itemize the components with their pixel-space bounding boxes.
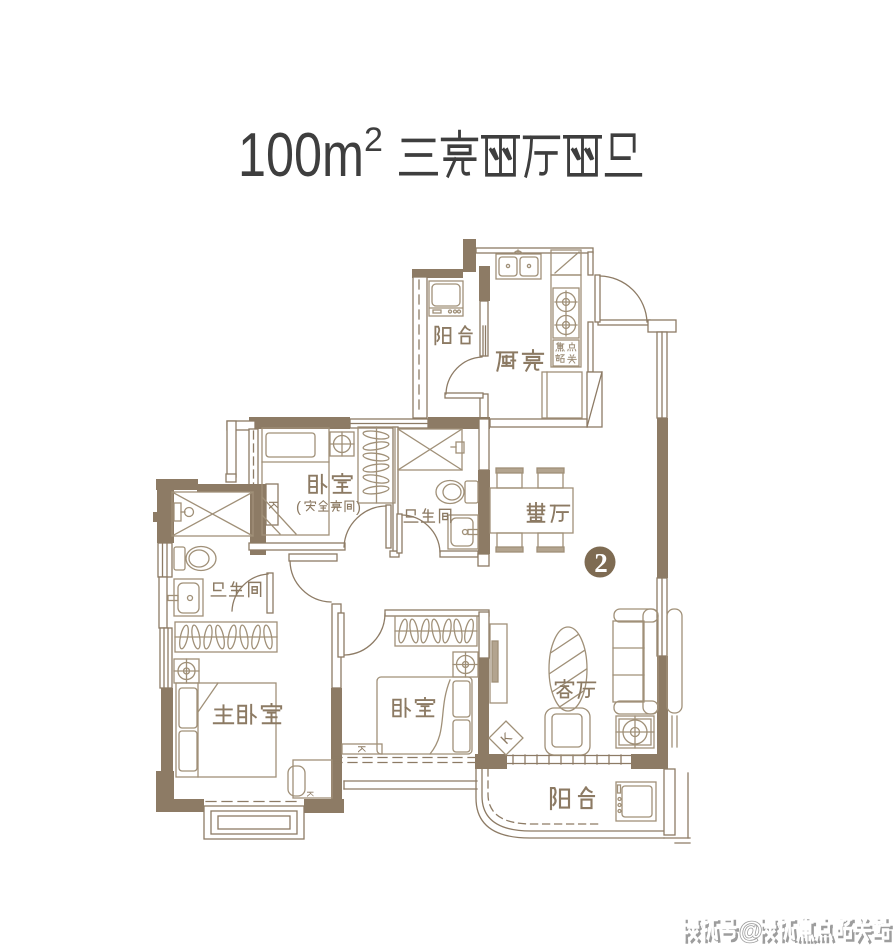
svg-text:K: K — [497, 729, 515, 747]
svg-text:2: 2 — [364, 121, 383, 159]
svg-text:): ) — [356, 499, 361, 516]
svg-text:2: 2 — [594, 548, 608, 578]
svg-text:K: K — [305, 791, 315, 797]
svg-text:K: K — [266, 501, 281, 510]
svg-text:(: ( — [296, 499, 301, 516]
svg-text:@: @ — [739, 918, 762, 945]
svg-text:K: K — [355, 745, 367, 753]
svg-text:100m: 100m — [238, 121, 364, 190]
